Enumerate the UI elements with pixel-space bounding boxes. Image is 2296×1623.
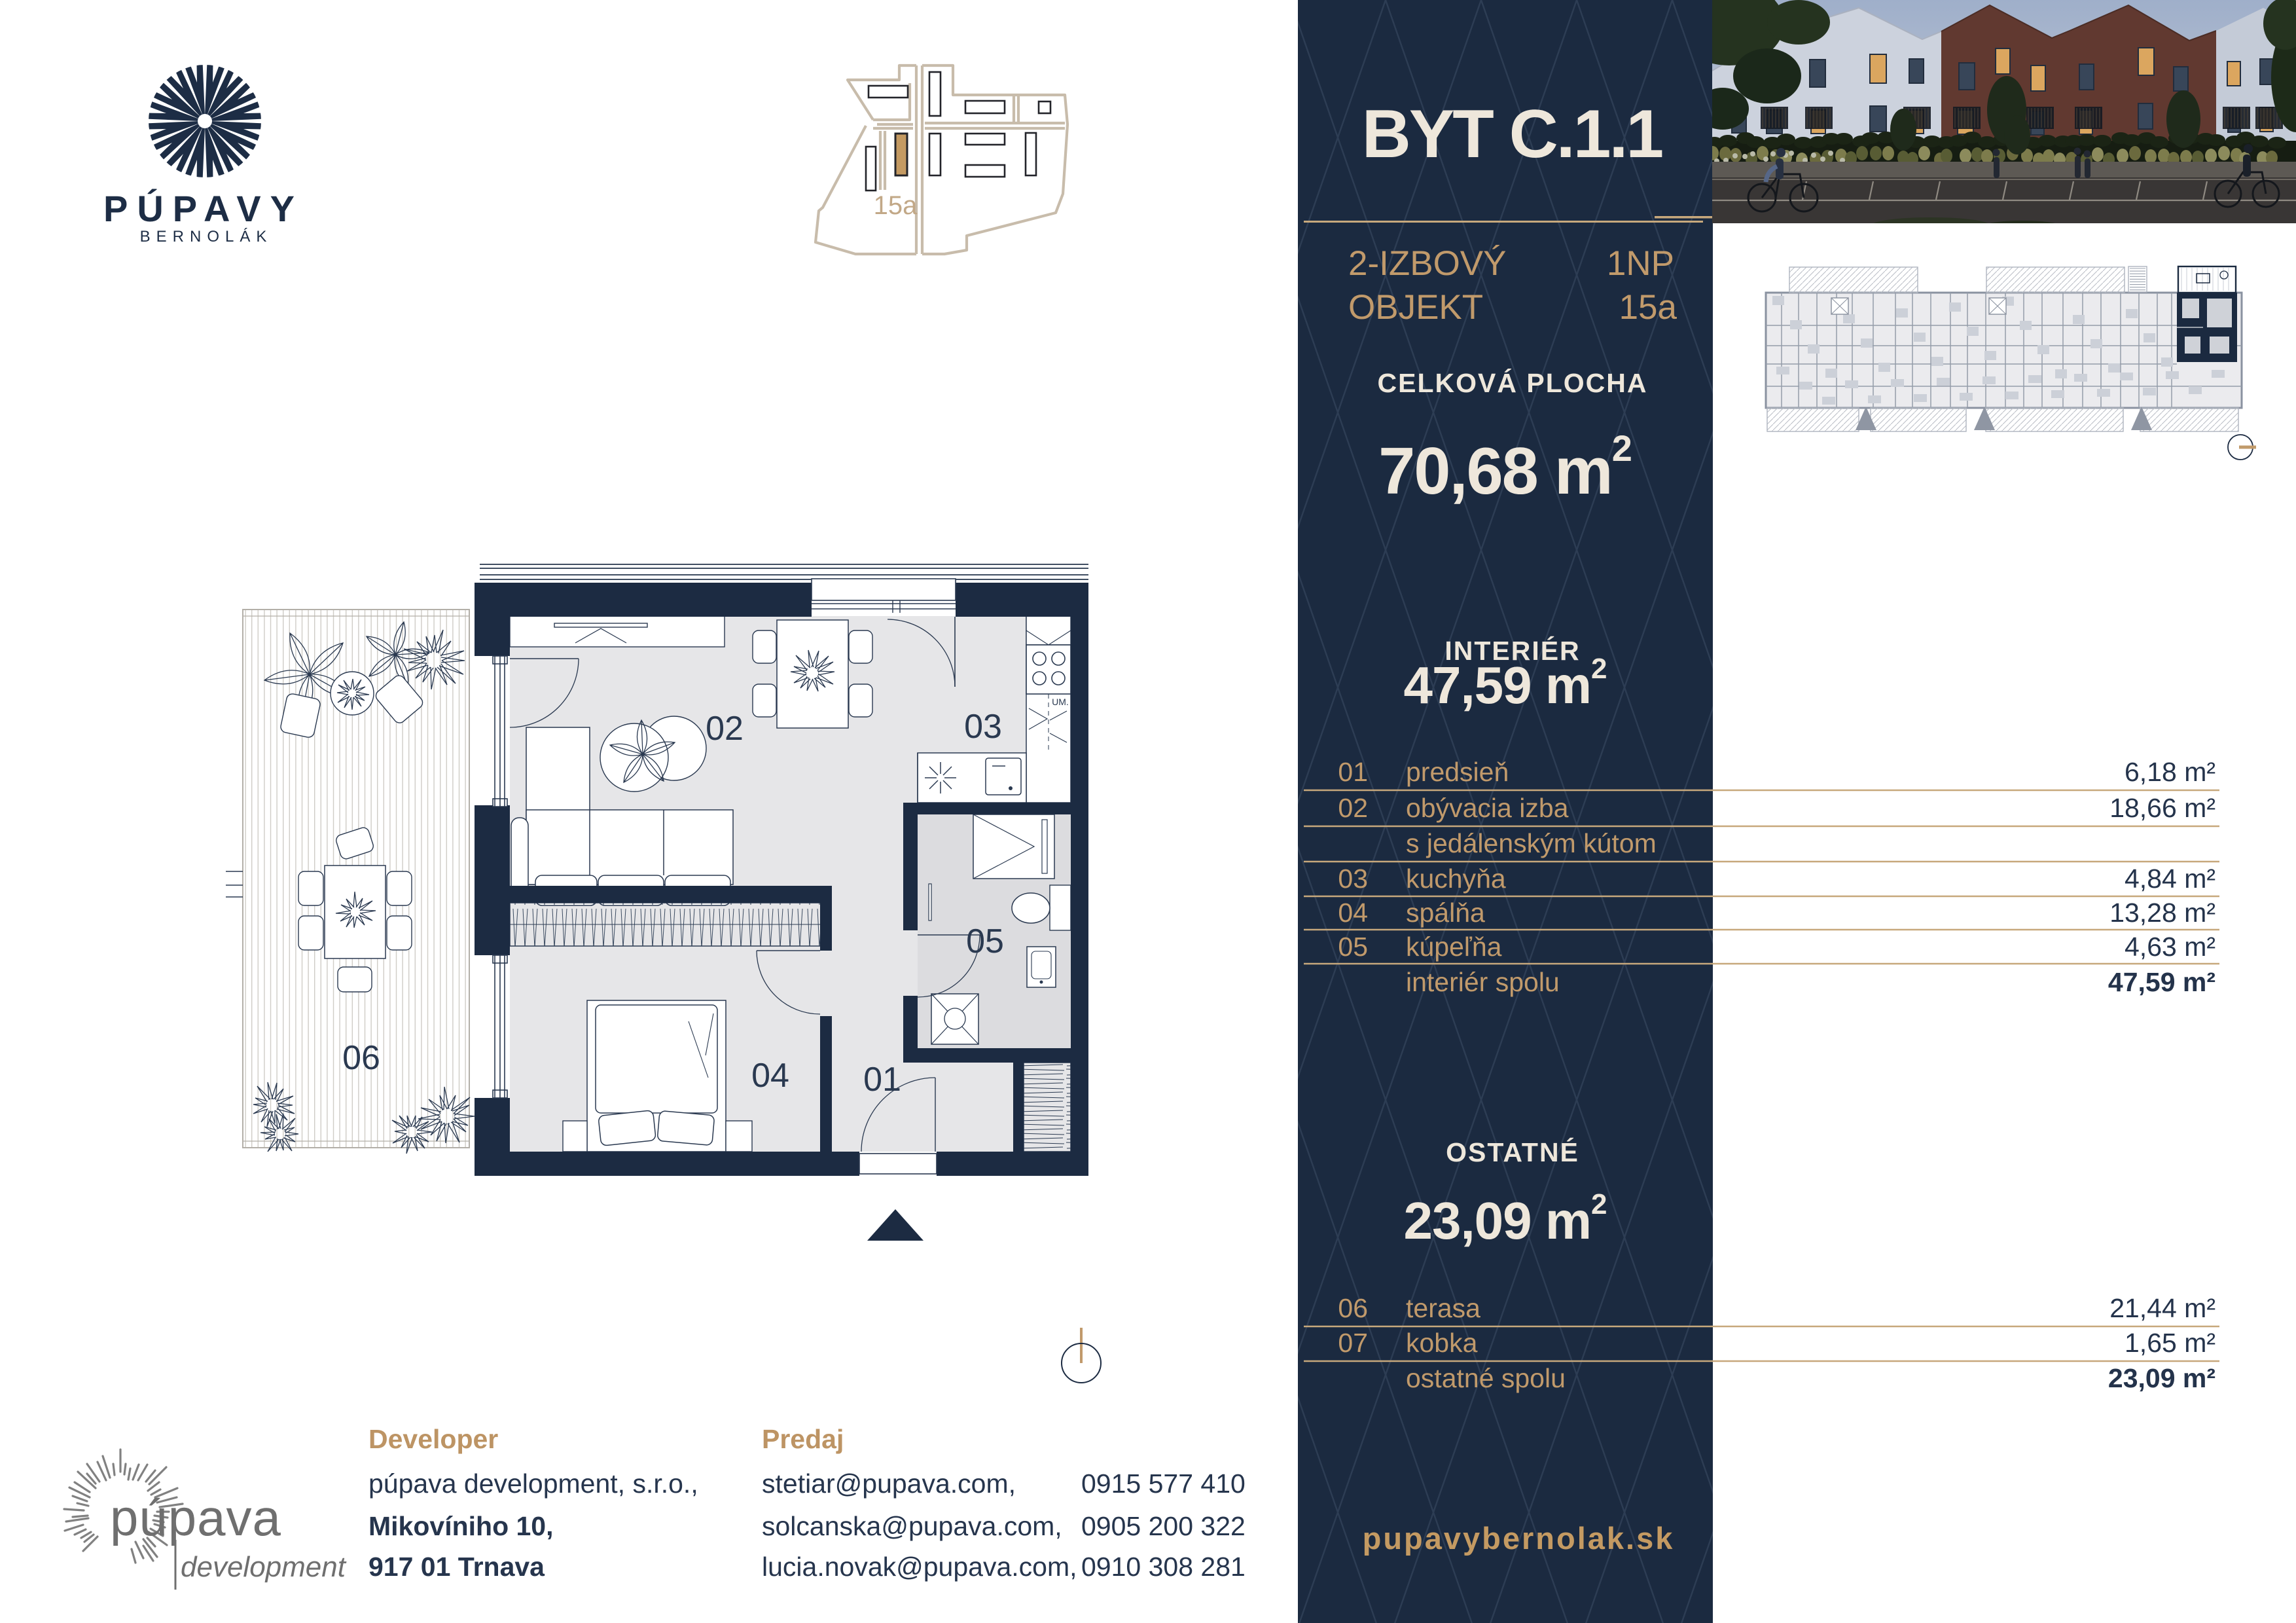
svg-text:OBJEKT: OBJEKT: [1348, 288, 1483, 327]
svg-text:917 01 Trnava: 917 01 Trnava: [368, 1552, 545, 1582]
svg-text:kúpeľňa: kúpeľňa: [1406, 932, 1502, 962]
svg-text:47,59 m²: 47,59 m²: [2108, 967, 2215, 997]
svg-text:18,66 m²: 18,66 m²: [2109, 793, 2215, 823]
svg-text:Predaj: Predaj: [762, 1424, 844, 1454]
svg-text:6,18 m²: 6,18 m²: [2125, 757, 2215, 787]
svg-text:development: development: [181, 1551, 347, 1583]
svg-text:2-IZBOVÝ: 2-IZBOVÝ: [1348, 244, 1507, 283]
svg-text:4,63 m²: 4,63 m²: [2125, 932, 2215, 962]
svg-text:04: 04: [1338, 898, 1368, 928]
svg-text:púpava development, s.r.o.,: púpava development, s.r.o.,: [368, 1468, 698, 1499]
svg-text:05: 05: [1338, 932, 1368, 962]
svg-text:1,65 m²: 1,65 m²: [2125, 1328, 2215, 1358]
svg-text:UM.: UM.: [1052, 697, 1069, 707]
svg-text:0910 308 281: 0910 308 281: [1081, 1552, 1246, 1582]
svg-text:pupavybernolak.sk: pupavybernolak.sk: [1363, 1521, 1675, 1556]
svg-text:02: 02: [1338, 793, 1368, 823]
svg-text:03: 03: [1338, 864, 1368, 894]
svg-text:05: 05: [966, 922, 1004, 960]
svg-text:15a: 15a: [1619, 288, 1677, 327]
svg-text:13,28 m²: 13,28 m²: [2109, 898, 2215, 928]
svg-text:púpava: púpava: [110, 1489, 281, 1546]
svg-text:OSTATNÉ: OSTATNÉ: [1446, 1137, 1579, 1167]
svg-text:06: 06: [1338, 1293, 1368, 1323]
svg-text:4,84 m²: 4,84 m²: [2125, 864, 2215, 894]
svg-text:stetiar@pupava.com,: stetiar@pupava.com,: [762, 1468, 1016, 1499]
svg-text:03: 03: [964, 708, 1002, 746]
svg-text:predsieň: predsieň: [1406, 757, 1509, 787]
svg-text:0915 577 410: 0915 577 410: [1081, 1468, 1246, 1499]
svg-text:interiér spolu: interiér spolu: [1406, 967, 1560, 997]
svg-text:0905 200 322: 0905 200 322: [1081, 1511, 1246, 1541]
svg-text:47,59 m2: 47,59 m2: [1403, 653, 1607, 714]
svg-text:obývacia izba: obývacia izba: [1406, 793, 1569, 823]
svg-text:04: 04: [751, 1057, 789, 1095]
svg-text:terasa: terasa: [1406, 1293, 1480, 1323]
svg-text:s jedálenským kútom: s jedálenským kútom: [1406, 828, 1657, 858]
svg-text:1NP: 1NP: [1607, 244, 1674, 283]
svg-text:01: 01: [863, 1061, 901, 1099]
svg-text:BYT C.1.1: BYT C.1.1: [1362, 96, 1662, 172]
svg-text:21,44 m²: 21,44 m²: [2109, 1293, 2215, 1323]
svg-text:CELKOVÁ PLOCHA: CELKOVÁ PLOCHA: [1378, 368, 1648, 398]
svg-text:solcanska@pupava.com,: solcanska@pupava.com,: [762, 1511, 1062, 1541]
svg-text:PÚPAVY: PÚPAVY: [103, 188, 304, 229]
svg-text:01: 01: [1338, 757, 1368, 787]
svg-text:07: 07: [1338, 1328, 1368, 1358]
svg-text:BERNOLÁK: BERNOLÁK: [140, 228, 273, 246]
svg-text:spálňa: spálňa: [1406, 898, 1485, 928]
svg-text:ostatné spolu: ostatné spolu: [1406, 1363, 1566, 1393]
svg-text:lucia.novak@pupava.com,: lucia.novak@pupava.com,: [762, 1552, 1077, 1582]
svg-text:70,68 m2: 70,68 m2: [1378, 428, 1632, 508]
svg-text:23,09 m²: 23,09 m²: [2108, 1363, 2215, 1393]
svg-text:23,09 m2: 23,09 m2: [1403, 1188, 1607, 1250]
svg-text:06: 06: [342, 1039, 380, 1077]
svg-text:kuchyňa: kuchyňa: [1406, 864, 1506, 894]
svg-text:Developer: Developer: [368, 1424, 498, 1454]
svg-text:02: 02: [706, 710, 744, 748]
svg-text:kobka: kobka: [1406, 1328, 1478, 1358]
svg-text:15a: 15a: [874, 191, 918, 220]
svg-text:Mikovíniho 10,: Mikovíniho 10,: [368, 1511, 554, 1541]
